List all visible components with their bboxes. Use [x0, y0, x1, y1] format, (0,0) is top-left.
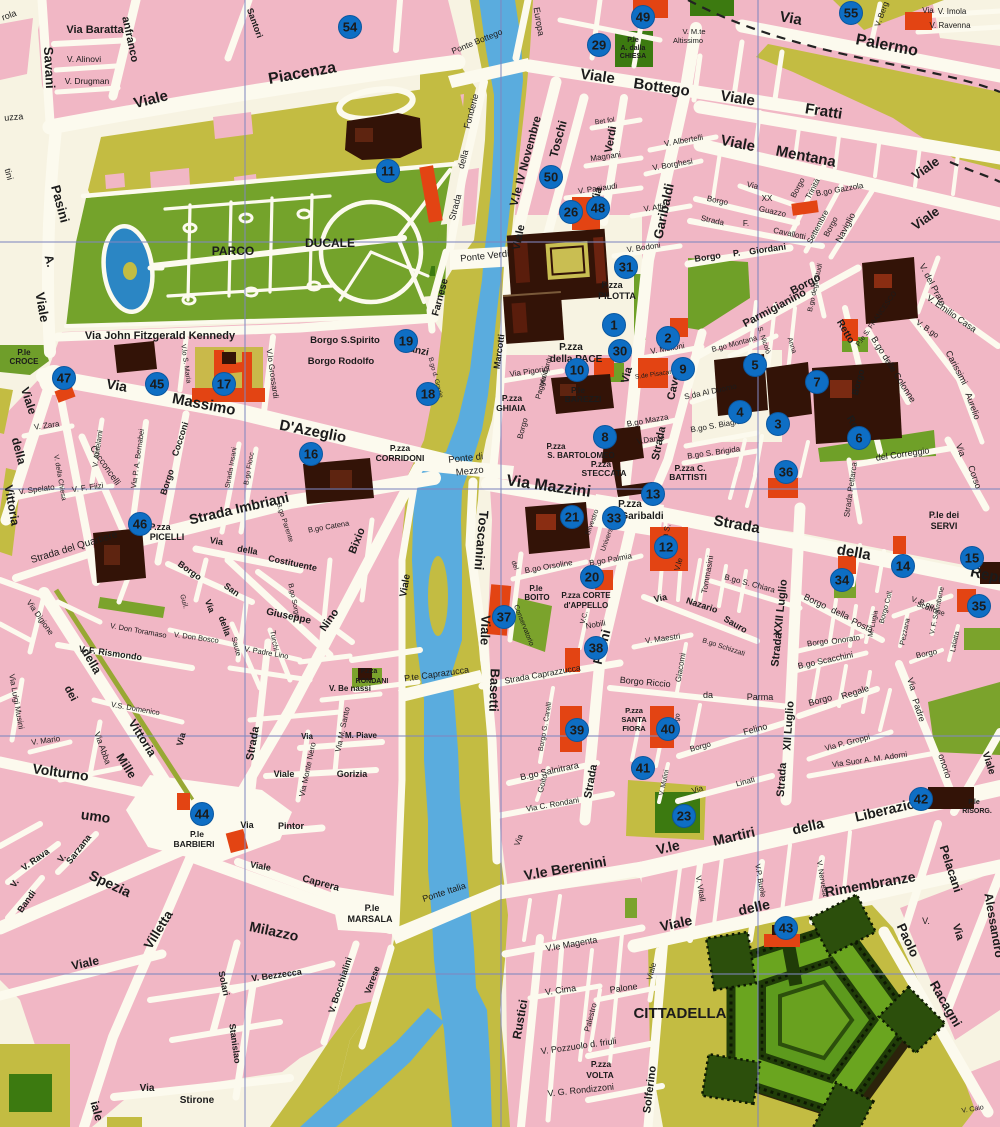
svg-text:P.zza: P.zza: [361, 668, 378, 675]
svg-text:PARCO: PARCO: [212, 244, 254, 258]
svg-text:P.zza: P.zza: [625, 706, 644, 715]
svg-text:STECCATA: STECCATA: [581, 468, 626, 478]
svg-text:Stirone: Stirone: [180, 1095, 215, 1106]
svg-text:CORRIDONI: CORRIDONI: [376, 453, 425, 463]
svg-text:Savani: Savani: [41, 46, 58, 89]
svg-text:RISORG.: RISORG.: [962, 808, 992, 815]
svg-text:Via: Via: [140, 1083, 155, 1094]
svg-text:3: 3: [774, 417, 781, 432]
svg-text:Gorizia: Gorizia: [337, 769, 369, 779]
svg-text:54: 54: [343, 20, 358, 35]
svg-text:18: 18: [421, 387, 435, 402]
svg-text:F.: F.: [743, 219, 749, 228]
svg-text:BARBIERI: BARBIERI: [173, 839, 214, 849]
svg-text:Strada: Strada: [775, 761, 789, 797]
svg-text:M. Piave: M. Piave: [345, 731, 378, 740]
svg-text:BAREZZI: BAREZZI: [565, 394, 602, 404]
svg-text:Parma: Parma: [747, 692, 774, 702]
svg-text:13: 13: [646, 487, 660, 502]
svg-text:CHIESA: CHIESA: [620, 53, 646, 60]
svg-text:Via John Fitzgerald Kennedy: Via John Fitzgerald Kennedy: [85, 330, 236, 342]
svg-text:12: 12: [659, 540, 673, 555]
svg-text:V. Be nassi: V. Be nassi: [329, 684, 371, 693]
svg-text:V. M.te: V. M.te: [682, 27, 705, 36]
svg-text:P.: P.: [732, 248, 741, 259]
svg-text:S. BARTOLOMEO: S. BARTOLOMEO: [547, 451, 614, 460]
svg-text:P.zza: P.zza: [591, 1059, 611, 1069]
svg-text:38: 38: [589, 641, 603, 656]
svg-text:40: 40: [661, 722, 675, 737]
svg-text:5: 5: [751, 358, 758, 373]
svg-text:Via: Via: [240, 820, 254, 830]
svg-text:P.le: P.le: [365, 903, 380, 913]
svg-text:30: 30: [613, 344, 627, 359]
svg-text:V. Ravenna: V. Ravenna: [929, 21, 971, 30]
svg-text:V. Imola: V. Imola: [938, 7, 967, 16]
svg-text:CROCE: CROCE: [10, 357, 40, 366]
svg-text:P.zza: P.zza: [559, 342, 583, 353]
svg-text:d'APPELLO: d'APPELLO: [564, 601, 609, 610]
svg-text:26: 26: [564, 205, 578, 220]
svg-text:P.zza: P.zza: [618, 499, 642, 510]
svg-text:Altissimo: Altissimo: [673, 36, 703, 45]
svg-text:FIORA: FIORA: [622, 724, 646, 733]
svg-text:2: 2: [664, 331, 671, 346]
svg-text:V. Alinovi: V. Alinovi: [67, 54, 101, 64]
svg-text:P.le dei: P.le dei: [929, 510, 959, 520]
svg-text:1: 1: [610, 318, 617, 333]
svg-text:39: 39: [570, 723, 584, 738]
svg-text:Basetti: Basetti: [486, 668, 503, 712]
svg-text:PICELLI: PICELLI: [150, 532, 185, 542]
svg-text:SANTA: SANTA: [621, 715, 647, 724]
svg-text:BATTISTI: BATTISTI: [669, 472, 707, 482]
svg-text:35: 35: [972, 599, 986, 614]
svg-text:Borgo S.Spirito: Borgo S.Spirito: [310, 335, 380, 346]
svg-text:41: 41: [636, 761, 650, 776]
svg-text:P.zza: P.zza: [390, 443, 410, 453]
svg-text:CITTADELLA: CITTADELLA: [633, 1005, 726, 1022]
svg-text:55: 55: [844, 6, 858, 21]
svg-text:8: 8: [601, 430, 608, 445]
svg-text:PILOTTA: PILOTTA: [598, 291, 636, 301]
svg-text:DUCALE: DUCALE: [305, 236, 355, 250]
svg-text:7: 7: [813, 375, 820, 390]
svg-text:17: 17: [217, 377, 231, 392]
svg-text:A. dalla: A. dalla: [621, 45, 646, 52]
svg-text:V.: V.: [922, 916, 930, 926]
svg-text:16: 16: [304, 447, 318, 462]
svg-text:37: 37: [497, 610, 511, 625]
svg-text:43: 43: [779, 921, 793, 936]
svg-text:9: 9: [679, 362, 686, 377]
svg-text:50: 50: [544, 170, 558, 185]
svg-text:XX: XX: [762, 194, 773, 203]
svg-text:4: 4: [736, 405, 744, 420]
svg-text:Viale: Viale: [477, 615, 493, 646]
svg-text:SERVI: SERVI: [931, 521, 958, 531]
svg-text:47: 47: [57, 371, 71, 386]
svg-text:10: 10: [570, 363, 584, 378]
svg-text:19: 19: [399, 334, 413, 349]
svg-text:VOLTA: VOLTA: [586, 1070, 614, 1080]
svg-text:46: 46: [133, 517, 147, 532]
svg-text:MARSALA: MARSALA: [348, 914, 393, 924]
svg-text:P.le: P.le: [17, 348, 31, 357]
svg-text:6: 6: [855, 431, 862, 446]
svg-text:14: 14: [896, 559, 911, 574]
svg-text:Pintor: Pintor: [278, 821, 304, 831]
svg-text:P.zza: P.zza: [149, 522, 171, 532]
svg-text:42: 42: [914, 792, 928, 807]
svg-text:P.zza CORTE: P.zza CORTE: [561, 591, 611, 600]
svg-text:da: da: [703, 690, 713, 700]
svg-text:45: 45: [150, 377, 164, 392]
svg-text:23: 23: [677, 809, 691, 824]
svg-text:Via: Via: [922, 6, 934, 15]
svg-text:49: 49: [636, 10, 650, 25]
svg-text:P.le: P.le: [968, 799, 980, 806]
svg-text:Garibaldi: Garibaldi: [620, 511, 664, 522]
svg-text:uzza: uzza: [4, 111, 24, 123]
svg-text:P.le: P.le: [627, 37, 639, 44]
svg-text:20: 20: [585, 570, 599, 585]
svg-text:P.zza: P.zza: [601, 280, 623, 290]
svg-text:V. Drugman: V. Drugman: [65, 76, 110, 86]
svg-text:34: 34: [835, 573, 850, 588]
svg-text:21: 21: [565, 510, 579, 525]
svg-text:GHIAIA: GHIAIA: [496, 403, 526, 413]
svg-text:44: 44: [195, 807, 210, 822]
svg-text:P.le: P.le: [190, 829, 204, 839]
svg-text:RONDANI: RONDANI: [356, 678, 389, 685]
svg-text:15: 15: [965, 551, 979, 566]
svg-text:31: 31: [619, 260, 633, 275]
svg-text:P.zza: P.zza: [502, 393, 522, 403]
svg-text:Viale: Viale: [274, 769, 295, 779]
svg-text:33: 33: [607, 511, 621, 526]
svg-text:P.le: P.le: [529, 584, 543, 593]
svg-text:P.zza: P.zza: [547, 442, 567, 451]
svg-text:48: 48: [591, 201, 605, 216]
svg-text:11: 11: [381, 164, 395, 179]
svg-text:29: 29: [592, 38, 606, 53]
svg-text:Via: Via: [301, 732, 313, 741]
svg-text:Via Baratta: Via Baratta: [66, 24, 124, 36]
svg-text:BOITO: BOITO: [524, 593, 549, 602]
svg-text:Borgo Rodolfo: Borgo Rodolfo: [308, 356, 375, 367]
svg-text:36: 36: [779, 465, 793, 480]
